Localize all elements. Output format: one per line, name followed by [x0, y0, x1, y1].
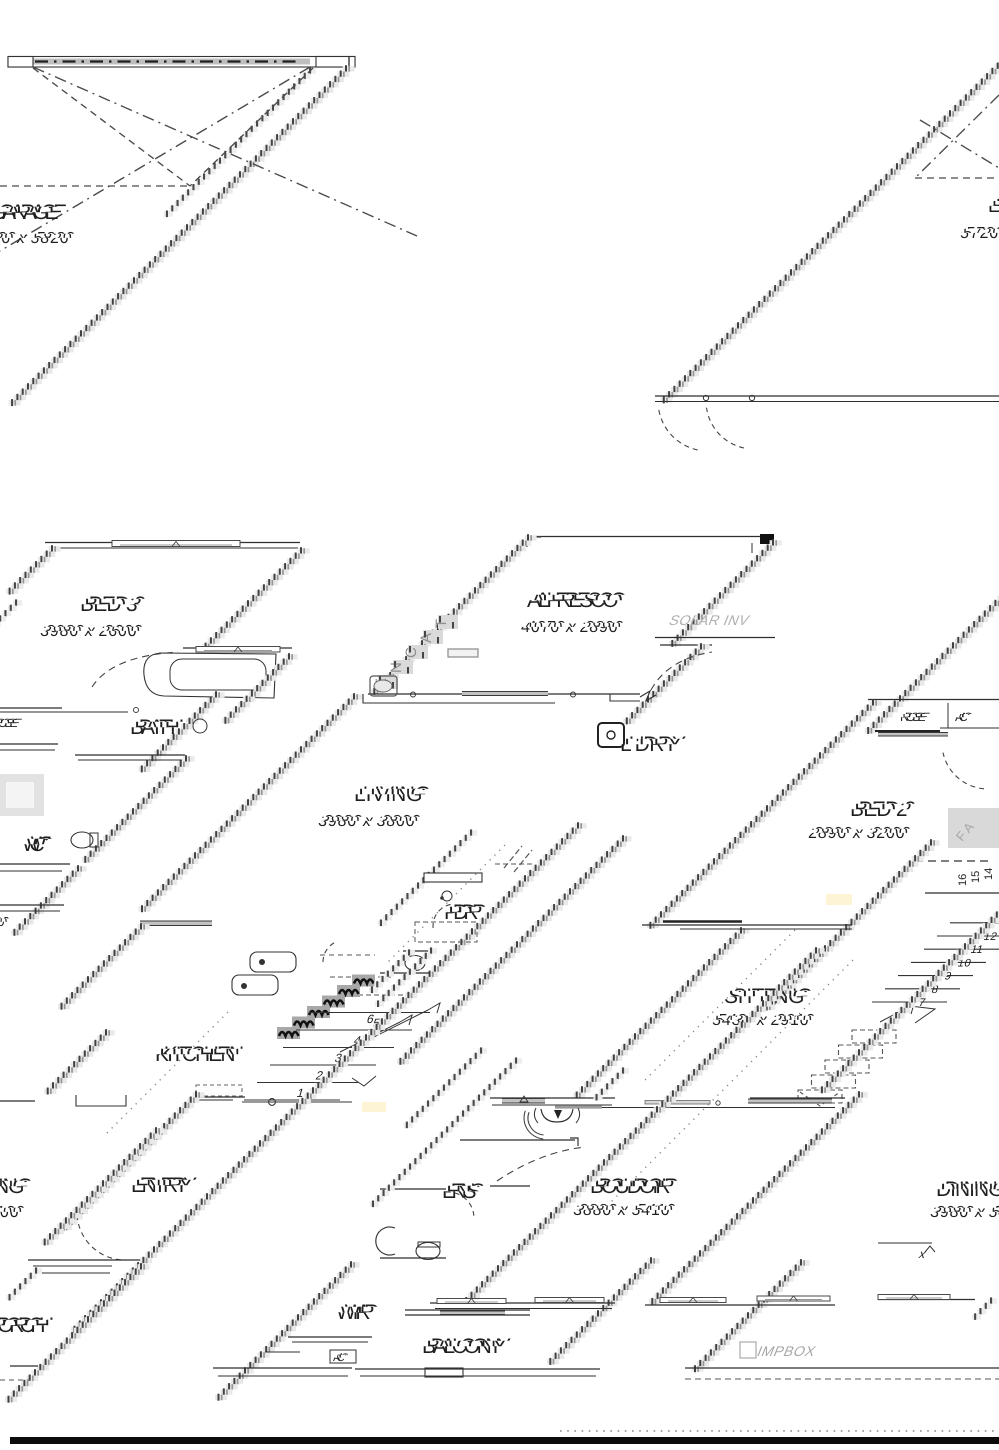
- svg-text:A: A: [418, 633, 435, 643]
- svg-text:16: 16: [957, 874, 969, 886]
- svg-text:C: C: [403, 647, 420, 658]
- svg-text:T: T: [433, 619, 450, 628]
- svg-text:IMPBOX: IMPBOX: [755, 1343, 819, 1359]
- svg-text:14: 14: [983, 868, 995, 880]
- svg-text:SOLAR INV: SOLAR INV: [667, 612, 753, 628]
- svg-text:N: N: [388, 662, 405, 673]
- svg-text:15: 15: [970, 871, 982, 883]
